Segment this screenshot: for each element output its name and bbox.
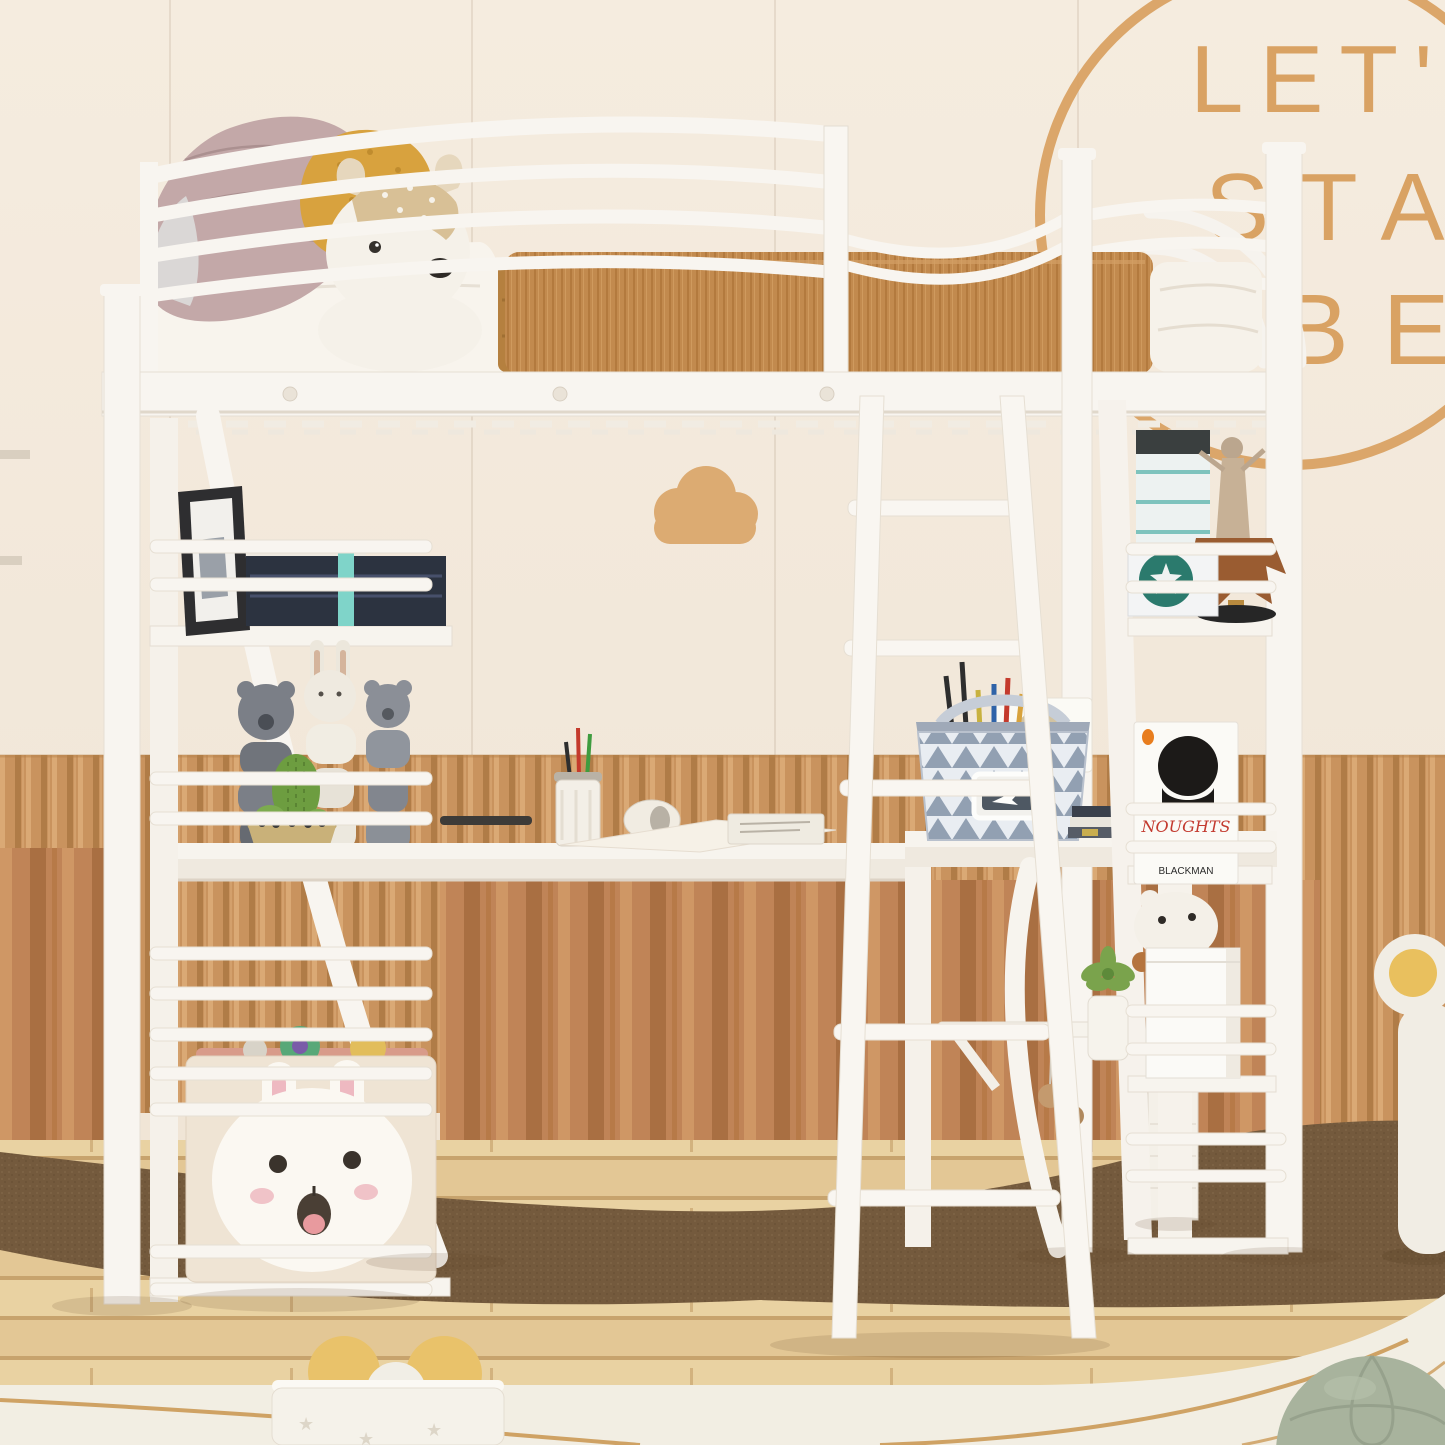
wall-shelf-sliver bbox=[0, 556, 22, 565]
neon-line-1: LET'S bbox=[1190, 26, 1445, 133]
star-print-icon: ★ bbox=[358, 1429, 374, 1445]
star-print-icon: ★ bbox=[426, 1420, 442, 1441]
ladder-rung bbox=[834, 1024, 1050, 1040]
bedding-end-roll bbox=[1150, 262, 1262, 372]
loft-bed-room-photo: LET'S STAY BE bbox=[0, 0, 1445, 1445]
wall-shelf-sliver bbox=[0, 450, 30, 459]
book-title-1: NOUGHTS bbox=[1141, 817, 1231, 836]
book-author: BLACKMAN bbox=[1158, 866, 1213, 877]
notebook bbox=[728, 814, 824, 844]
afro-silhouette bbox=[1158, 736, 1218, 796]
star-print-icon: ★ bbox=[298, 1414, 314, 1435]
pen-dark bbox=[440, 816, 532, 825]
guardrail-end-post bbox=[140, 162, 158, 374]
neon-line-3: BE bbox=[1282, 274, 1445, 386]
bed-post-left bbox=[104, 290, 140, 1304]
penguin-logo bbox=[1142, 729, 1154, 745]
picture-frame bbox=[178, 486, 250, 636]
guardrail-center-post bbox=[824, 126, 848, 376]
bunny-storage-box bbox=[186, 1026, 436, 1282]
ladder-rung bbox=[828, 1190, 1060, 1206]
curtain-left bbox=[0, 848, 104, 1166]
deer-eye bbox=[369, 241, 381, 253]
